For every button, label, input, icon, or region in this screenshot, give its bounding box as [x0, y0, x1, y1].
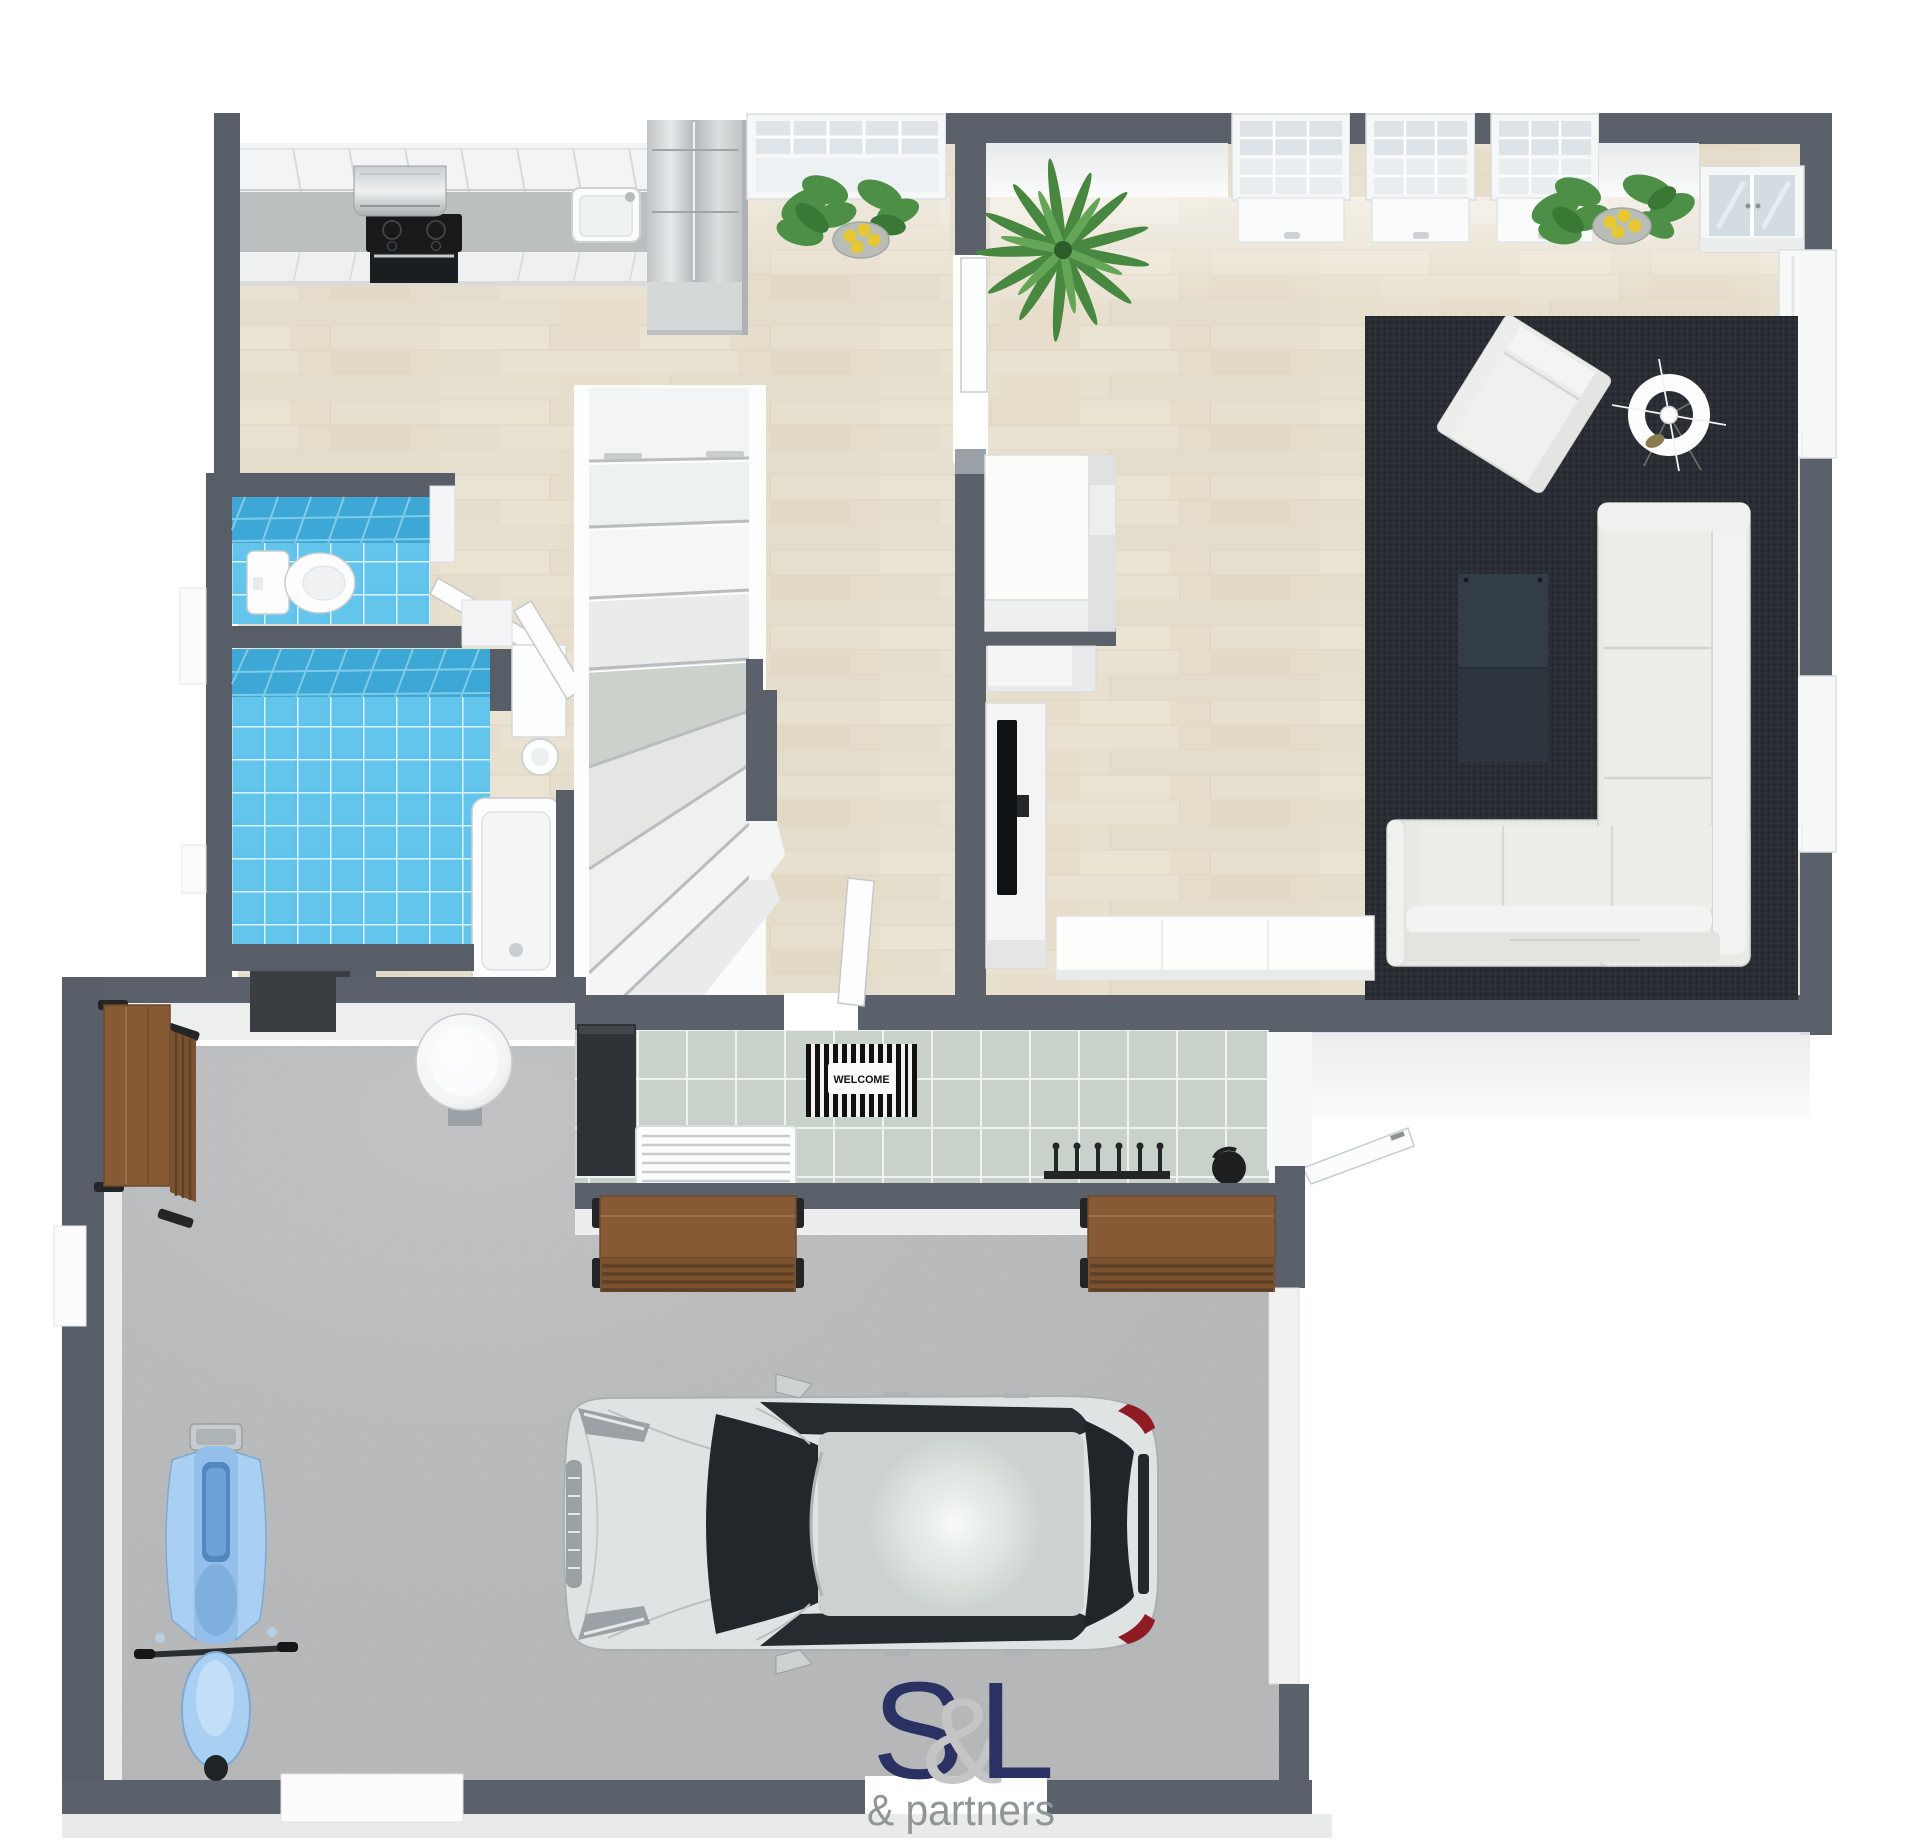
svg-text:WELCOME: WELCOME [834, 1074, 890, 1086]
svg-text:& partners: & partners [867, 1786, 1055, 1835]
svg-text:L: L [978, 1654, 1055, 1808]
